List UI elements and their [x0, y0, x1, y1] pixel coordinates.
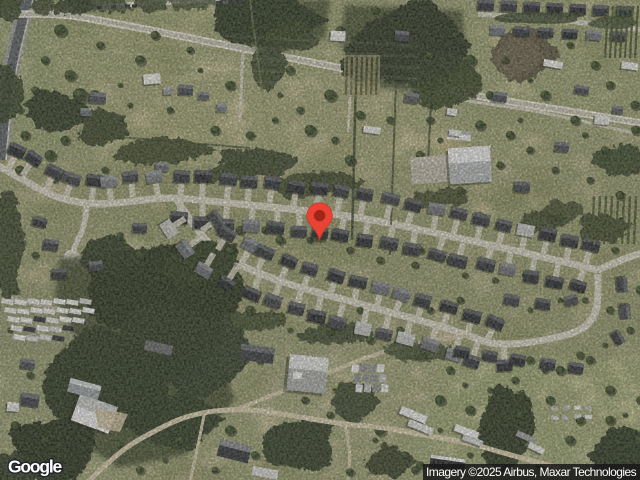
svg-text:Google: Google — [8, 457, 63, 477]
